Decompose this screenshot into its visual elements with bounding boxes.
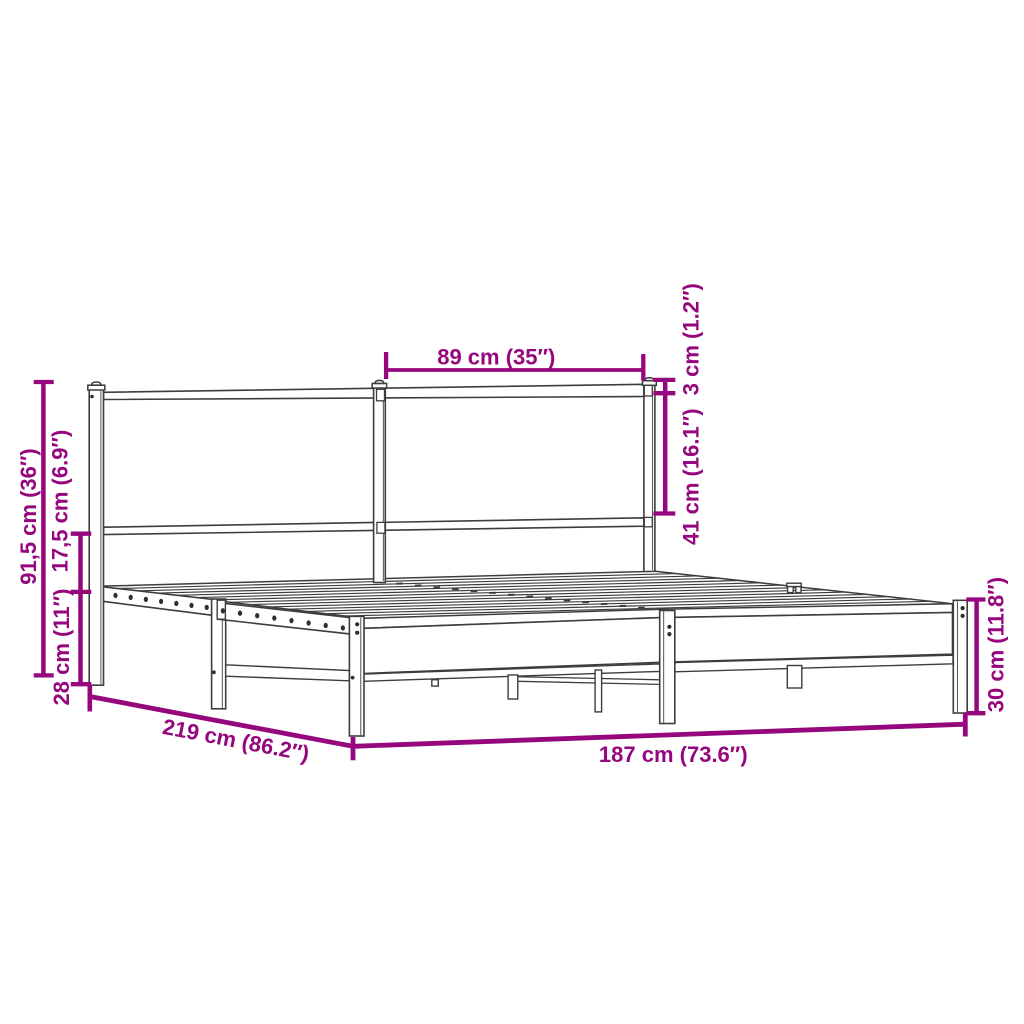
svg-text:28 cm (11″): 28 cm (11″) <box>49 589 74 706</box>
svg-text:41 cm (16.1″): 41 cm (16.1″) <box>678 408 703 545</box>
svg-text:187 cm (73.6″): 187 cm (73.6″) <box>599 742 748 767</box>
svg-text:89 cm (35″): 89 cm (35″) <box>437 344 555 369</box>
svg-text:91,5 cm (36″): 91,5 cm (36″) <box>16 448 41 585</box>
svg-text:3 cm (1.2″): 3 cm (1.2″) <box>678 283 703 395</box>
svg-text:30 cm (11.8″): 30 cm (11.8″) <box>984 577 1009 712</box>
svg-text:17,5 cm (6.9″): 17,5 cm (6.9″) <box>48 430 73 573</box>
